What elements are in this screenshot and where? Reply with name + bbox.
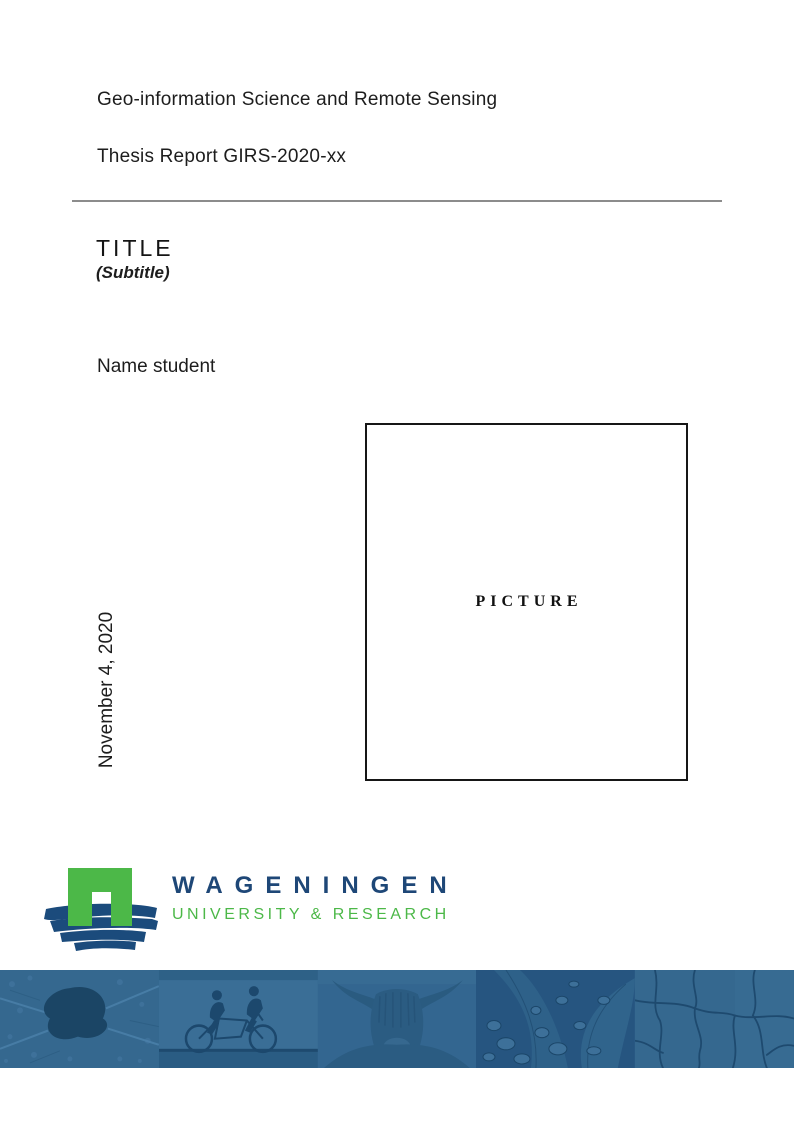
banner-photo-cracked-earth bbox=[635, 970, 794, 1068]
picture-placeholder-box: PICTURE bbox=[365, 423, 688, 781]
thesis-title: TITLE bbox=[96, 235, 174, 262]
author-name: Name student bbox=[97, 356, 215, 378]
logo-tagline: UNIVERSITY & RESEARCH bbox=[172, 906, 450, 924]
picture-placeholder-label: PICTURE bbox=[470, 593, 582, 611]
report-date: November 4, 2020 bbox=[96, 612, 118, 768]
banner-photo-leaf-water-droplets bbox=[476, 970, 635, 1068]
banner-photo-tandem-cyclists bbox=[159, 970, 318, 1068]
program-name: Geo-information Science and Remote Sensi… bbox=[97, 89, 497, 111]
thesis-cover-page: Geo-information Science and Remote Sensi… bbox=[0, 0, 794, 1123]
report-id: Thesis Report GIRS-2020-xx bbox=[97, 146, 346, 168]
brush-stroke-shape bbox=[44, 904, 158, 951]
wageningen-logo-icon bbox=[40, 862, 162, 958]
banner-photo-highland-cow bbox=[318, 970, 477, 1068]
horizontal-rule bbox=[72, 200, 722, 202]
logo-org-name: WAGENINGEN bbox=[172, 872, 459, 900]
banner-photo-aerial-landscape bbox=[0, 970, 159, 1068]
green-gate-shape bbox=[68, 868, 132, 926]
thesis-subtitle: (Subtitle) bbox=[96, 263, 170, 283]
photo-banner bbox=[0, 970, 794, 1068]
